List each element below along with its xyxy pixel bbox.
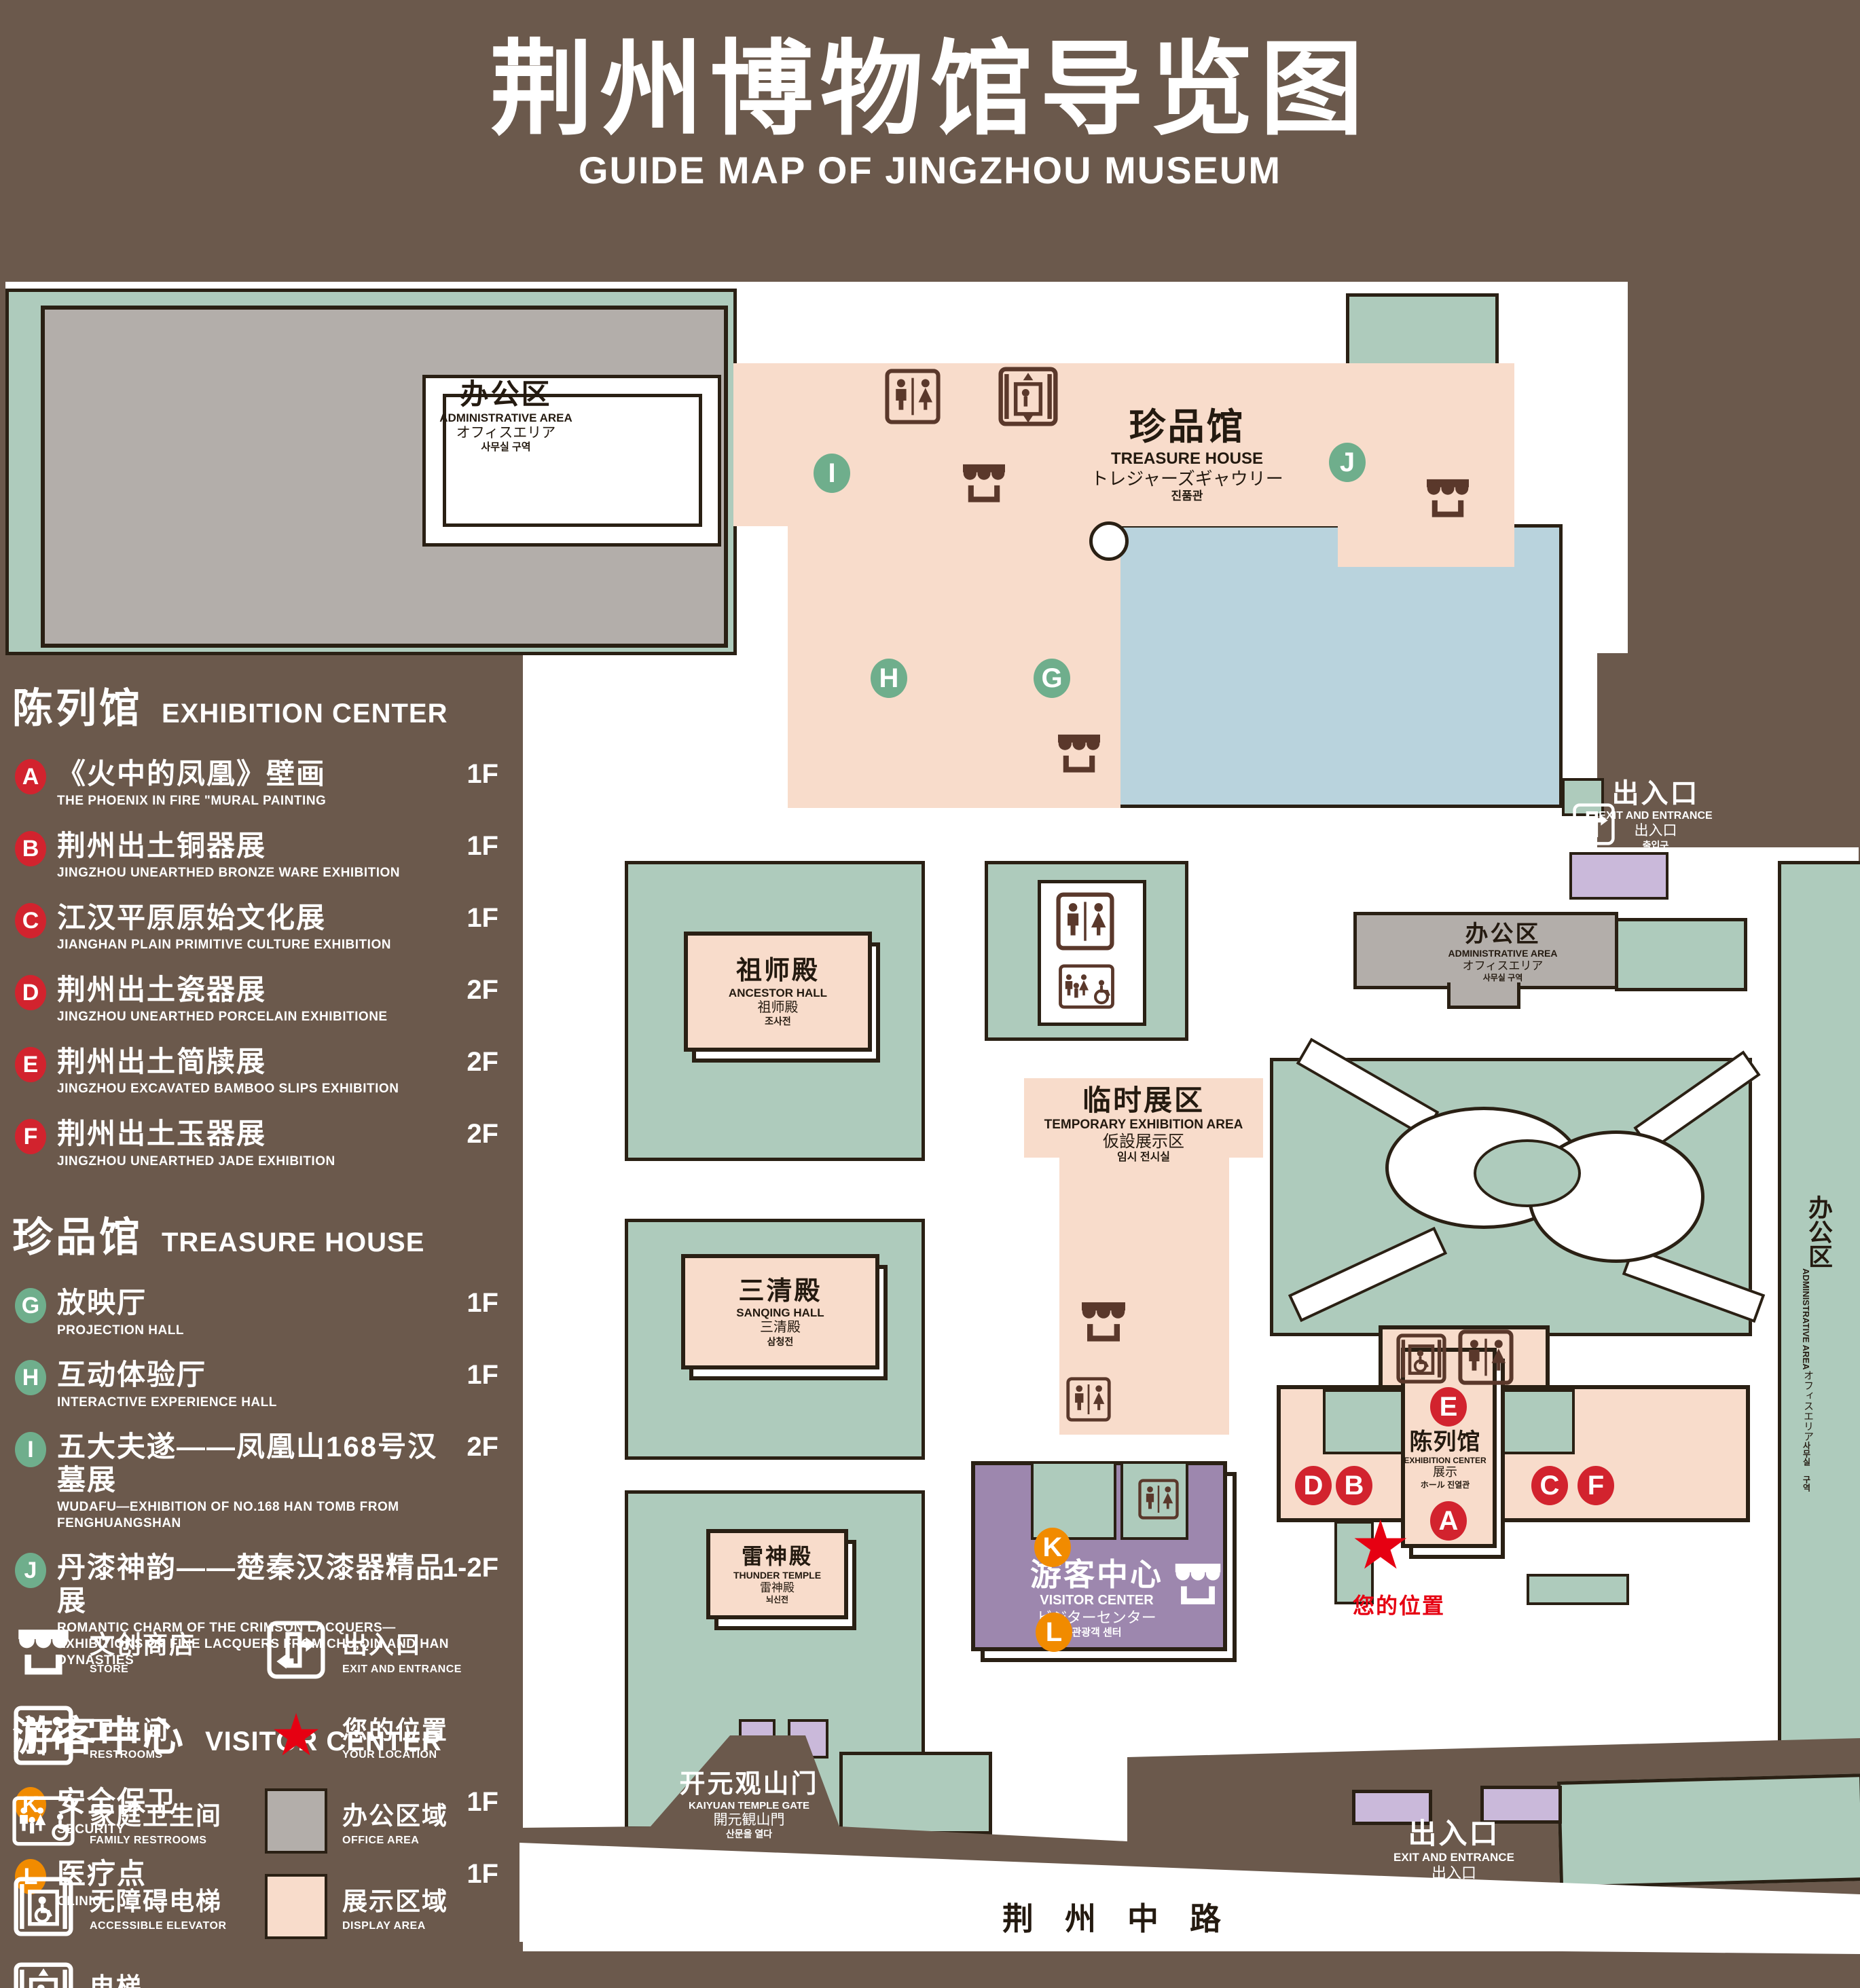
legend-item-E: E 荆州出土简牍展JINGZHOU EXCAVATED BAMBOO SLIPS…: [12, 1046, 515, 1097]
map-marker-I: I: [814, 454, 850, 493]
floor-badge: 1F: [467, 831, 498, 862]
admin-vertical-ko: 사무실 구역: [1801, 1441, 1836, 1492]
admin-nw-label: 办公区 ADMINISTRATIVE AREA オフィスエリア 사무실 구역: [370, 378, 642, 454]
garden-island: [1474, 1139, 1581, 1207]
road-label: 荆州中路: [910, 1894, 1345, 1939]
section-title-zh: 珍品馆: [12, 1204, 143, 1264]
map-marker-B: B: [1336, 1466, 1372, 1505]
marker-badge: F: [15, 1119, 46, 1154]
legend-restrooms: 卫生间RESTROOMS: [12, 1703, 265, 1768]
restroom-icon: [1056, 891, 1114, 952]
marker-badge: D: [15, 975, 46, 1010]
restroom-icon: [14, 1706, 73, 1765]
admin-vertical-en: ADMINISTRATIVE AREA: [1801, 1268, 1836, 1370]
floor-badge: 1F: [467, 759, 498, 790]
legend-item-I: I 五大夫遂——凤凰山168号汉墓展WUDAFU—EXHIBITION OF N…: [12, 1431, 515, 1531]
admin-vertical-ja: オフィスエリア: [1801, 1370, 1836, 1441]
treasure-house-label: 珍品馆 TREASURE HOUSE トレジャーズギャウリー 진품관: [1051, 406, 1323, 503]
sanqing-hall-label: 三清殿 SANQING HALL 三清殿 삼청전: [736, 1276, 824, 1348]
display-area-swatch: [265, 1874, 327, 1939]
your-location-star-icon: ★: [270, 1706, 322, 1765]
marker-badge: C: [15, 903, 46, 938]
legend-store: 文创商店STORE: [12, 1617, 265, 1682]
floor-badge: 1F: [467, 1360, 498, 1391]
map-marker-F: F: [1578, 1466, 1614, 1505]
map-marker-D: D: [1295, 1466, 1332, 1505]
floor-badge: 2F: [467, 1432, 498, 1462]
admin-vertical-zh: 办公区: [1801, 1195, 1836, 1268]
accessible-elevator-icon: [1396, 1332, 1446, 1385]
marker-badge: H: [15, 1360, 46, 1395]
map-marker-J: J: [1329, 443, 1366, 482]
map-marker-C: C: [1531, 1466, 1568, 1505]
marker-badge: B: [15, 831, 46, 866]
floor-badge: 2F: [467, 1119, 498, 1149]
map-marker-E: E: [1430, 1387, 1467, 1426]
store-icon: [960, 460, 1008, 502]
family-restroom-icon: [1051, 964, 1122, 1009]
visitor-center-label: 游客中心 VISITOR CENTER ビジターセンター 관광객 센터: [998, 1556, 1195, 1639]
thunder-temple-building: 雷神殿 THUNDER TEMPLE 雷神殿 뇌신전: [706, 1529, 848, 1619]
guide-map-poster: 荆州博物馆导览图 GUIDE MAP OF JINGZHOU MUSEUM 办公…: [0, 0, 1860, 1988]
legend-office-area: 办公区域OFFICE AREA: [265, 1788, 517, 1854]
restroom-icon: [1457, 1329, 1514, 1385]
your-location-star-icon: ★: [1350, 1511, 1411, 1579]
floor-badge: 2F: [467, 975, 498, 1006]
floor-badge: 1F: [467, 1288, 498, 1319]
ancestor-hall-label: 祖师殿 ANCESTOR HALL 祖师殿 조사전: [729, 956, 827, 1027]
section-title-zh: 陈列馆: [12, 676, 143, 735]
restroom-icon: [885, 369, 941, 424]
store-icon: [1172, 1559, 1224, 1605]
legend-elevator: 电梯Elevator: [12, 1959, 265, 1988]
exhibition-center-label: 陈列馆 EXHIBITION CENTER 展示 ホール 진열관: [1400, 1429, 1490, 1490]
legend-section-treasure-header: 珍品馆 TREASURE HOUSE: [12, 1204, 515, 1264]
lawn-southeast: [1557, 1773, 1860, 1889]
section-title-en: TREASURE HOUSE: [162, 1228, 424, 1258]
lawn-small: [1527, 1574, 1629, 1605]
map-marker-A: A: [1430, 1501, 1467, 1541]
visitor-center-courtyard: [1031, 1461, 1116, 1540]
kaiyuan-gate-label: 开元观山门 KAIYUAN TEMPLE GATE 開元観山門 산문을 열다: [644, 1769, 854, 1840]
page-subtitle: GUIDE MAP OF JINGZHOU MUSEUM: [0, 148, 1860, 192]
restroom-icon: [1066, 1376, 1111, 1423]
legend-display-area: 展示区域DISPLAY AREA: [265, 1874, 517, 1939]
floor-badge: 2F: [467, 1047, 498, 1078]
lawn-north: [1346, 293, 1499, 372]
page-title: 荆州博物馆导览图: [0, 5, 1860, 155]
store-icon: [15, 1624, 72, 1676]
legend-accessible-elevator: 无障碍电梯ACCESSIBLE ELEVATOR: [12, 1874, 265, 1939]
legend-item-D: D 荆州出土瓷器展JINGZHOU UNEARTHED PORCELAIN EX…: [12, 974, 515, 1025]
map-marker-L: L: [1036, 1613, 1072, 1652]
legend-your-location: ★ 您的位置YOUR LOCATION: [265, 1703, 517, 1768]
symbol-legend: 文创商店STORE 出入口EXIT AND ENTRANCE 卫生间RESTRO…: [12, 1617, 528, 1988]
marker-badge: I: [15, 1432, 46, 1467]
elevator-icon: [998, 365, 1058, 428]
legend-item-F: F 荆州出土玉器展JINGZHOU UNEARTHED JADE EXHIBIT…: [12, 1118, 515, 1169]
family-restroom-icon: [12, 1794, 75, 1848]
legend-exit: 出入口EXIT AND ENTRANCE: [265, 1617, 517, 1682]
store-icon: [1423, 475, 1472, 517]
treasure-fountain: [1089, 521, 1129, 561]
marker-badge: A: [15, 759, 46, 794]
sanqing-hall-building: 三清殿 SANQING HALL 三清殿 삼청전: [681, 1254, 879, 1369]
legend-item-A: A 《火中的凤凰》壁画THE PHOENIX IN FIRE "MURAL PA…: [12, 758, 515, 809]
lawn-gate-east: [839, 1752, 992, 1835]
elevator-icon: [14, 1962, 73, 1988]
exit-door-icon: [267, 1621, 325, 1679]
ancestor-hall-building: 祖师殿 ANCESTOR HALL 祖师殿 조사전: [684, 932, 872, 1052]
store-icon: [1055, 731, 1104, 773]
office-area-swatch: [265, 1788, 327, 1854]
map-marker-G: G: [1034, 659, 1070, 698]
map-marker-K: K: [1034, 1528, 1071, 1567]
floor-badge: 1-2F: [443, 1553, 498, 1583]
legend-item-C: C 江汉平原原始文化展JIANGHAN PLAIN PRIMITIVE CULT…: [12, 902, 515, 953]
ne-gate: [1569, 852, 1668, 900]
ne-exit-label: 出入口 EXIT AND ENTRANCE 出入口 출입구: [1554, 778, 1757, 851]
thunder-temple-label: 雷神殿 THUNDER TEMPLE 雷神殿 뇌신전: [733, 1544, 821, 1604]
legend-family-restrooms: 家庭卫生间FAMILY RESTROOMS: [12, 1788, 265, 1854]
exhibition-courtyard-west: [1323, 1389, 1404, 1454]
map-marker-H: H: [871, 659, 907, 698]
accessible-elevator-icon: [14, 1877, 73, 1936]
marker-badge: E: [15, 1047, 46, 1082]
floor-badge: 1F: [467, 903, 498, 934]
section-title-en: EXHIBITION CENTER: [162, 699, 448, 729]
marker-badge: G: [15, 1288, 46, 1323]
your-location-label: 您的位置: [1311, 1589, 1487, 1620]
marker-badge: J: [15, 1553, 46, 1588]
legend-item-B: B 荆州出土铜器展JINGZHOU UNEARTHED BRONZE WARE …: [12, 830, 515, 881]
restroom-icon: [1138, 1477, 1179, 1521]
admin-east-label: 办公区 ADMINISTRATIVE AREA オフィスエリア 사무실 구역: [1367, 921, 1639, 982]
admin-east-strip-label: 办公区 ADMINISTRATIVE AREA オフィスエリア 사무실 구역: [1785, 1195, 1853, 1534]
store-icon: [1078, 1298, 1129, 1342]
legend-item-G: G 放映厅PROJECTION HALL 1F: [12, 1287, 515, 1338]
legend-item-H: H 互动体验厅INTERACTIVE EXPERIENCE HALL 1F: [12, 1359, 515, 1410]
temporary-exhibition-label: 临时展区 TEMPORARY EXHIBITION AREA 仮設展示区 임시 …: [1010, 1084, 1277, 1164]
legend-section-exhibition-header: 陈列馆 EXHIBITION CENTER: [12, 676, 515, 735]
admin-building-east-tab: [1447, 982, 1520, 1009]
